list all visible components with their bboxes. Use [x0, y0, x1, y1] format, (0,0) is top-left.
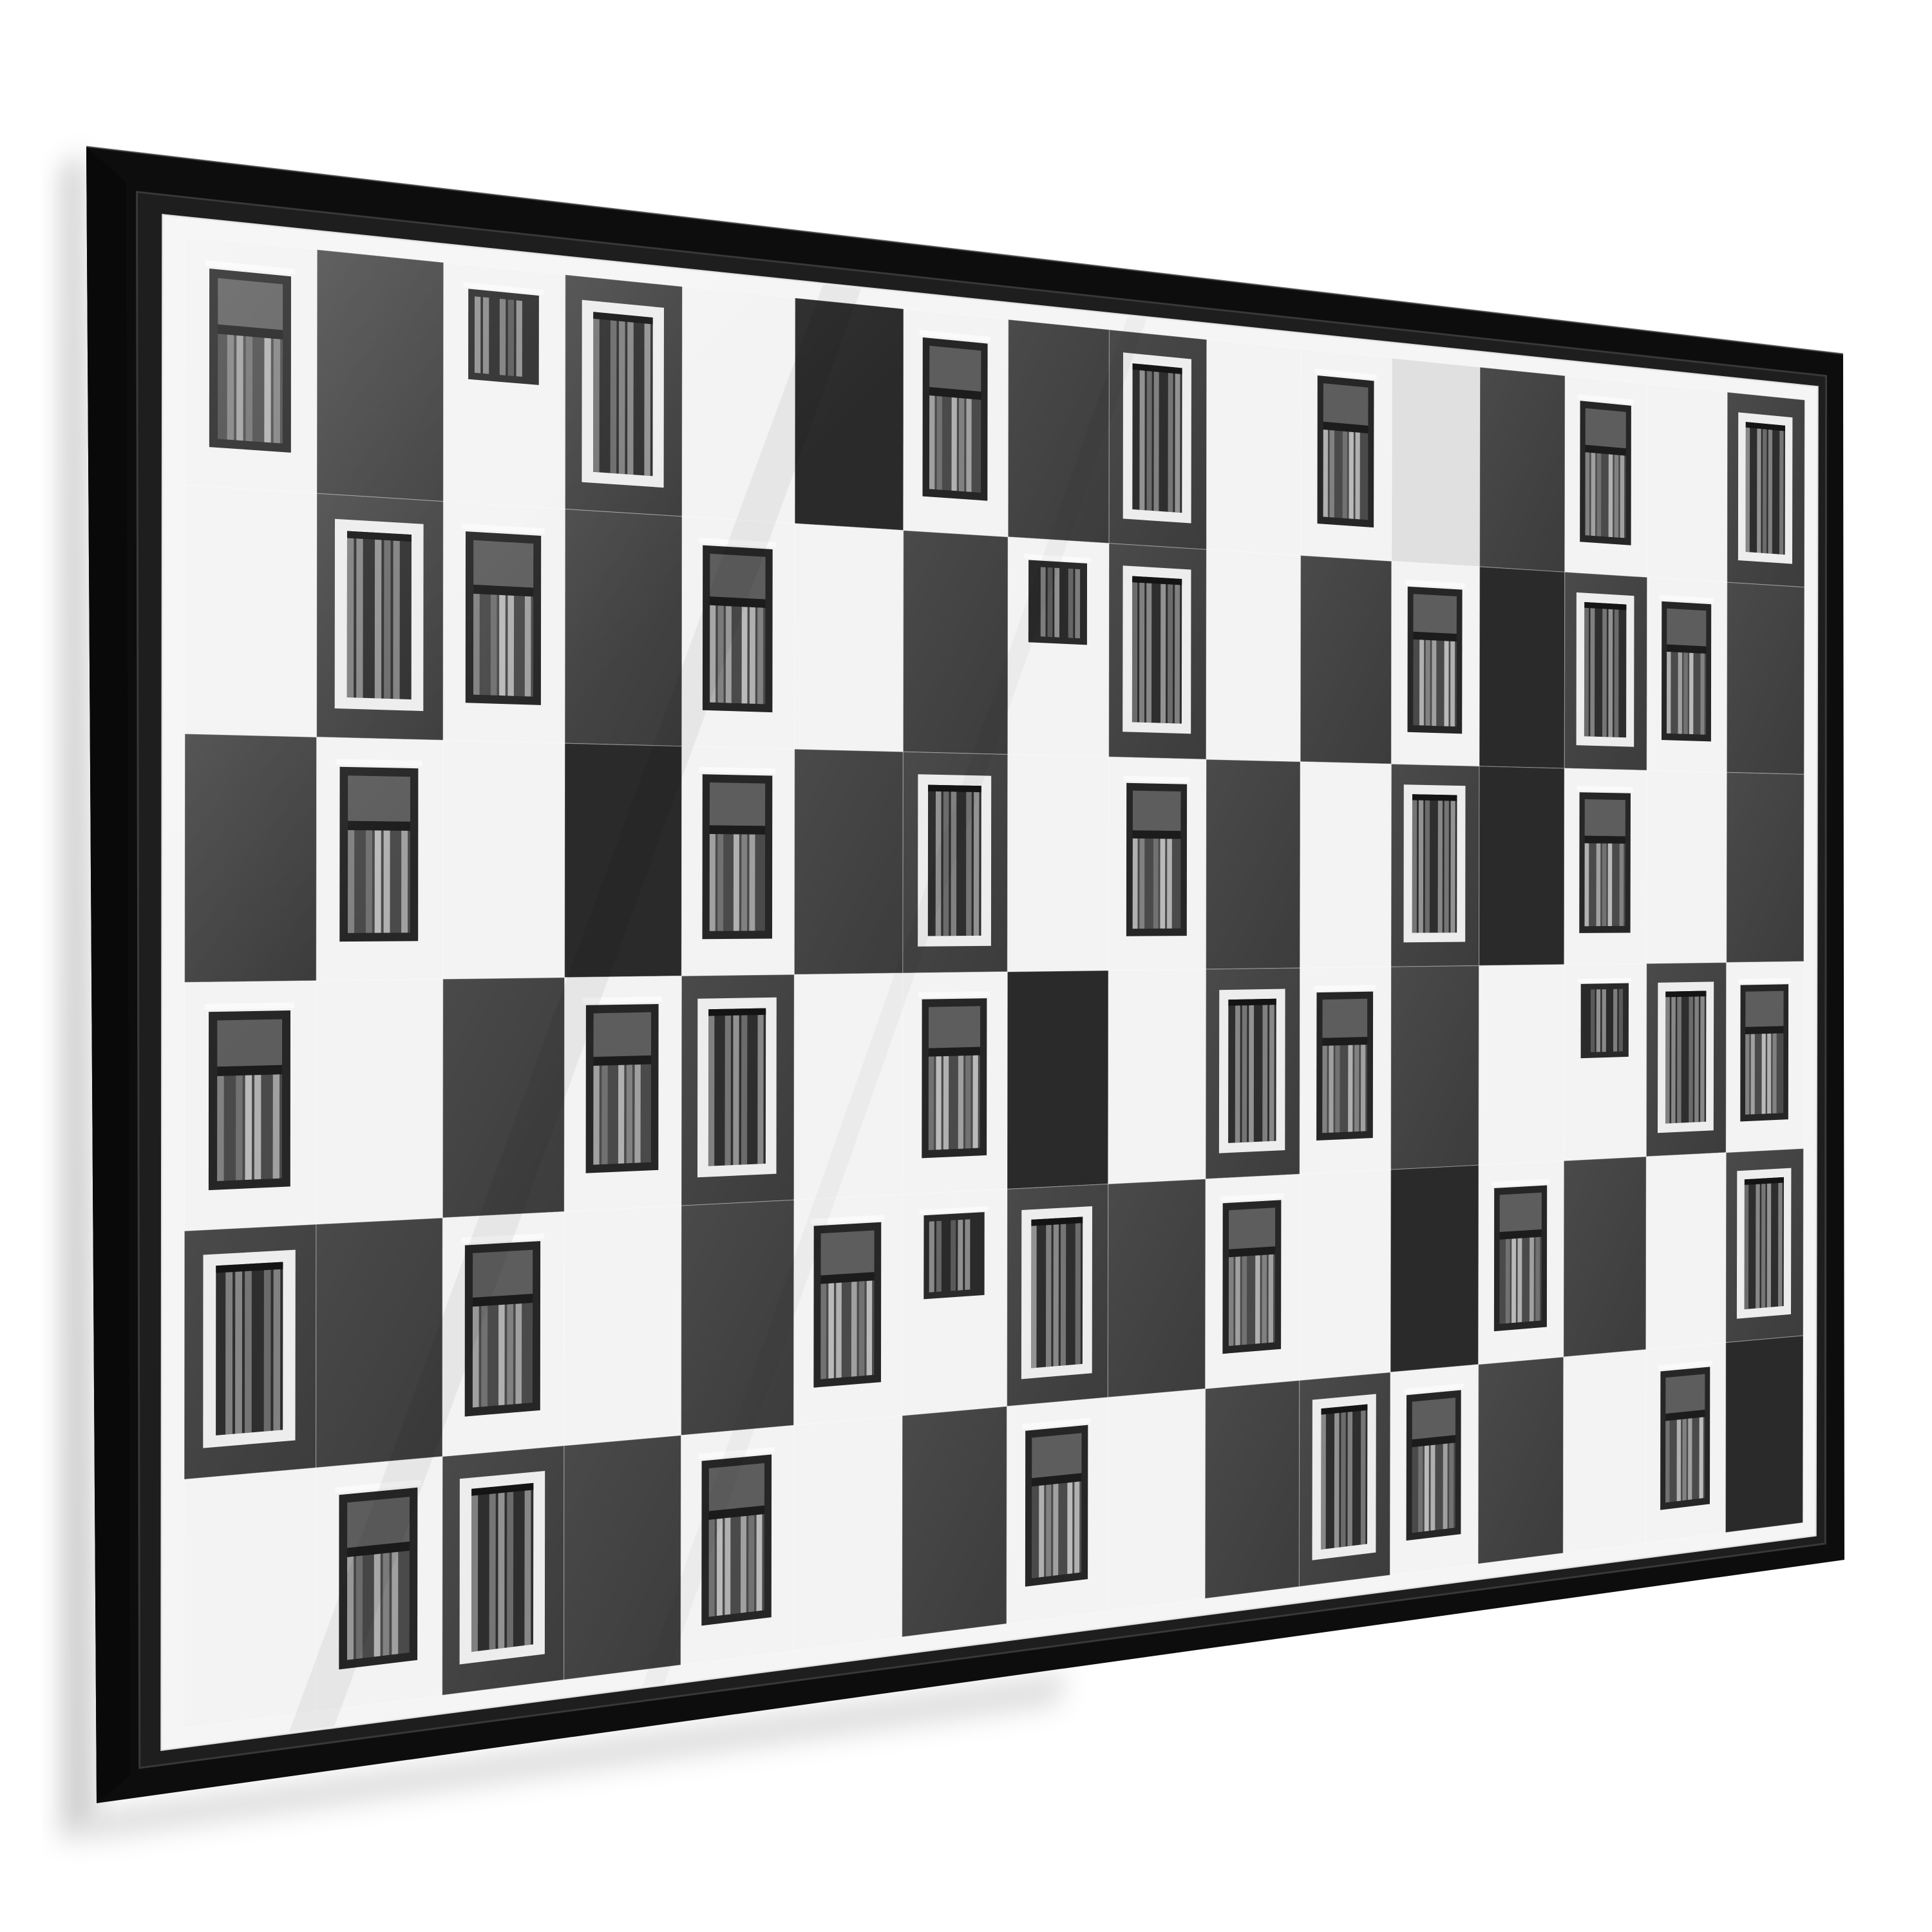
product-photo — [0, 0, 1932, 1932]
glass-reflection — [162, 215, 1817, 1750]
framed-poster-photo — [0, 0, 1932, 1932]
wall-background: { "scene": { "wall_color": "#ffffff", "s… — [0, 0, 1932, 1932]
